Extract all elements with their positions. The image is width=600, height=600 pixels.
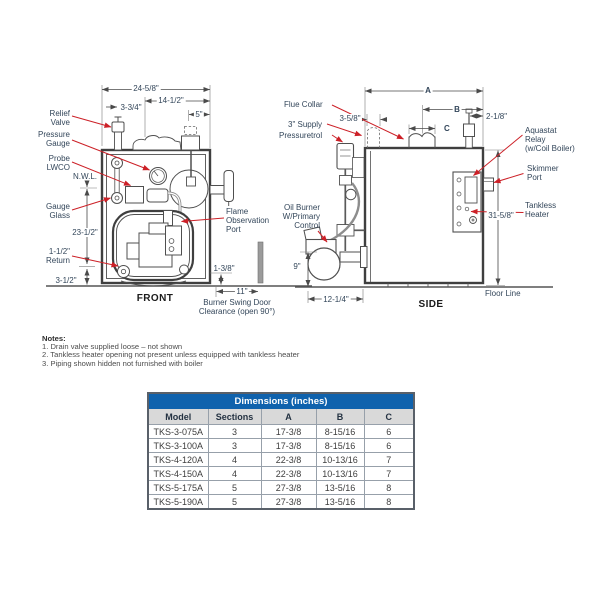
cell-b: 8-15/16 [316, 425, 364, 439]
table-row: TKS-4-150A 4 22-3/8 10-13/16 7 [148, 467, 414, 481]
supply-tapping [182, 136, 200, 150]
table-row: TKS-5-175A 5 27-3/8 13-5/16 8 [148, 481, 414, 495]
cell-b: 10-13/16 [316, 467, 364, 481]
dim-side-height: 31-5/8" [487, 211, 516, 220]
aquastat-relay [465, 177, 477, 203]
cell-c: 6 [364, 425, 414, 439]
front-view [46, 117, 312, 286]
dim-burner-height: 9" [292, 262, 302, 271]
flue-opening [170, 170, 208, 208]
label-skimmer: Skimmer Port [527, 164, 559, 182]
cell-b: 8-15/16 [316, 439, 364, 453]
dim-nwl-height: 23-1/2" [71, 228, 100, 237]
table-row: TKS-3-075A 3 17-3/8 8-15/16 6 [148, 425, 414, 439]
cell-model: TKS-5-175A [148, 481, 208, 495]
dim-front-tap: 5" [194, 110, 204, 119]
cell-a: 17-3/8 [261, 439, 316, 453]
cell-a: 22-3/8 [261, 467, 316, 481]
boiler-technical-drawing [0, 0, 600, 335]
return-tapping [118, 266, 130, 278]
cell-sections: 4 [208, 467, 261, 481]
label-floor-line: Floor Line [485, 289, 521, 298]
dim-front-flue-offset: 14-1/2" [157, 96, 186, 105]
cell-model: TKS-3-100A [148, 439, 208, 453]
cell-a: 27-3/8 [261, 481, 316, 495]
dim-front-valve-offset: 3-3/4" [119, 103, 143, 112]
cell-c: 7 [364, 467, 414, 481]
cell-sections: 3 [208, 439, 261, 453]
cell-model: TKS-4-120A [148, 453, 208, 467]
label-gauge-glass: Gauge Glass [10, 202, 70, 220]
dim-base-gap: 1-3/8" [213, 264, 234, 273]
cell-model: TKS-4-150A [148, 467, 208, 481]
cell-sections: 3 [208, 425, 261, 439]
cell-a: 27-3/8 [261, 495, 316, 510]
dimensions-table: Dimensions (inches) Model Sections A B C… [147, 392, 415, 510]
label-probe-lwco: Probe LWCO [10, 154, 70, 172]
oil-burner-motor [308, 248, 340, 280]
cell-b: 10-13/16 [316, 453, 364, 467]
side-tapping-pipe [210, 186, 224, 195]
dim-side-c: C [444, 124, 450, 133]
cell-sections: 5 [208, 481, 261, 495]
pigtail-siphon [346, 189, 356, 199]
label-return: 1-1/2" Return [10, 247, 70, 265]
col-header-sections: Sections [208, 409, 261, 425]
steam-supply-hidden [368, 128, 380, 148]
label-oil-burner: Oil Burner W/Primary Control [260, 203, 320, 230]
dim-valve-offset: 2-1/8" [486, 112, 507, 121]
side-view-title: SIDE [419, 300, 444, 309]
label-tankless: Tankless Heater [525, 201, 556, 219]
col-header-b: B [316, 409, 364, 425]
dim-burner-depth: 12-1/4" [322, 295, 351, 304]
cell-a: 22-3/8 [261, 453, 316, 467]
oil-line-hose [329, 183, 359, 241]
dim-side-b: B [453, 105, 462, 114]
label-pressuretrol: Pressuretrol [279, 131, 322, 140]
label-relief-valve: Relief Valve [10, 109, 70, 127]
notes-block: Notes: 1. Drain valve supplied loose – n… [42, 335, 299, 368]
cell-a: 17-3/8 [261, 425, 316, 439]
cell-sections: 4 [208, 453, 261, 467]
table-row: TKS-3-100A 3 17-3/8 8-15/16 6 [148, 439, 414, 453]
label-aquastat: Aquastat Relay (w/Coil Boiler) [525, 126, 575, 153]
cell-c: 6 [364, 439, 414, 453]
col-header-model: Model [148, 409, 208, 425]
burner-air-tube [340, 252, 364, 262]
table-row: TKS-4-120A 4 22-3/8 10-13/16 7 [148, 453, 414, 467]
boiler-spec-sheet: Relief Valve Pressure Gauge Probe LWCO N… [0, 0, 600, 600]
table-row: TKS-5-190A 5 27-3/8 13-5/16 8 [148, 495, 414, 510]
open-door-position [258, 242, 263, 283]
label-swing-door: Burner Swing Door Clearance (open 90°) [199, 298, 275, 316]
dim-front-width: 24-5/8" [132, 84, 161, 93]
relief-valve-body [112, 122, 124, 132]
cell-b: 13-5/16 [316, 495, 364, 510]
label-supply: 3" Supply [288, 120, 322, 129]
dim-supply-offset: 3-5/8" [338, 114, 362, 123]
dim-return-height: 3-1/2" [55, 276, 76, 285]
lwco-control [126, 187, 144, 204]
cell-sections: 5 [208, 495, 261, 510]
relief-valve-pipe [115, 132, 122, 150]
cell-model: TKS-5-190A [148, 495, 208, 510]
label-pressure-gauge: Pressure Gauge [10, 130, 70, 148]
note-item: 3. Piping shown hidden not furnished wit… [42, 360, 299, 368]
cell-c: 8 [364, 481, 414, 495]
cell-c: 8 [364, 495, 414, 510]
cell-model: TKS-3-075A [148, 425, 208, 439]
top-casting [133, 136, 181, 150]
cell-c: 7 [364, 453, 414, 467]
skimmer-port [484, 178, 494, 191]
label-nwl: N.W.L. [37, 172, 97, 181]
dim-door-clearance: 11" [235, 287, 249, 296]
gauge-glass-bottom [112, 193, 123, 204]
dim-side-a: A [424, 86, 433, 95]
label-flue-collar: Flue Collar [284, 100, 323, 109]
front-view-title: FRONT [137, 294, 173, 303]
col-header-c: C [364, 409, 414, 425]
table-title: Dimensions (inches) [148, 393, 414, 409]
cell-b: 13-5/16 [316, 481, 364, 495]
table-header-row: Model Sections A B C [148, 409, 414, 425]
col-header-a: A [261, 409, 316, 425]
